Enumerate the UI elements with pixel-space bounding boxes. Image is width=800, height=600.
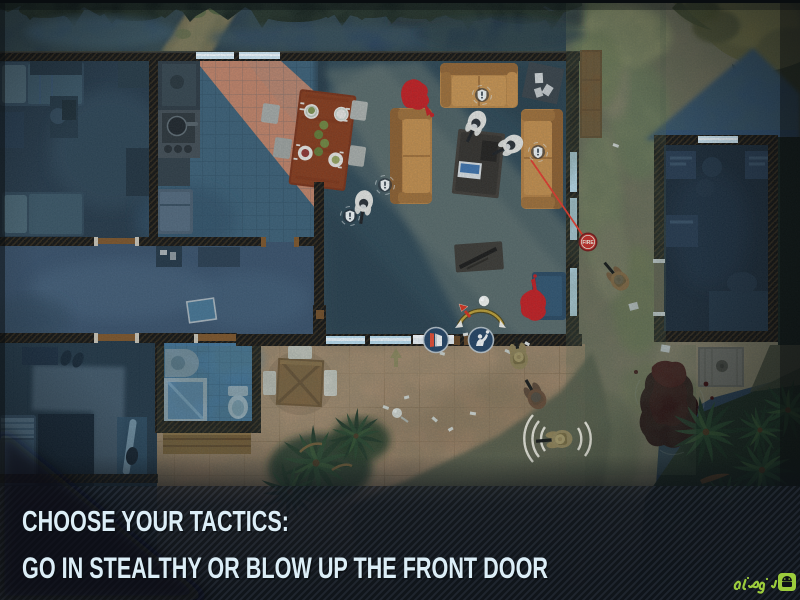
svg-text:CHOOSE YOUR TACTICS:: CHOOSE YOUR TACTICS:: [22, 506, 289, 538]
svg-text:GO IN STEALTHY OR BLOW UP THE: GO IN STEALTHY OR BLOW UP THE FRONT DOOR: [22, 552, 548, 585]
